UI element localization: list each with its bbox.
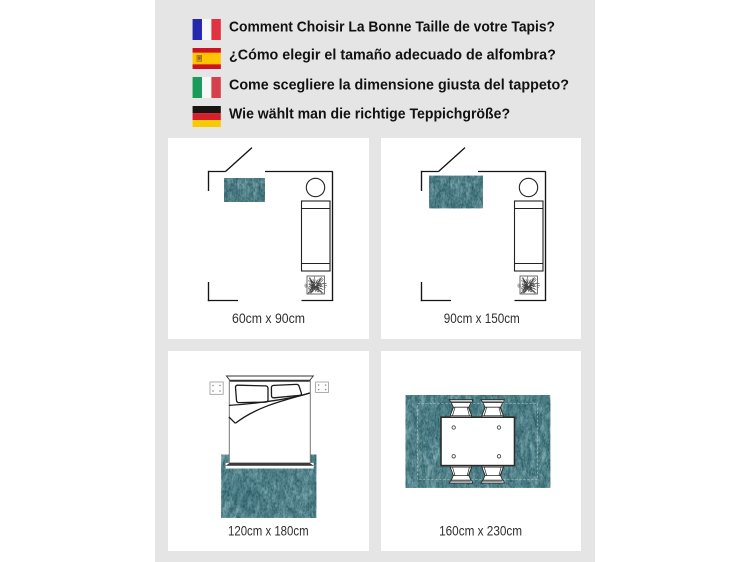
svg-text:60cm x 90cm: 60cm x 90cm — [232, 311, 305, 326]
svg-text:120cm x 180cm: 120cm x 180cm — [228, 524, 309, 539]
svg-text:160cm x 230cm: 160cm x 230cm — [439, 524, 522, 539]
svg-text:90cm x 150cm: 90cm x 150cm — [444, 311, 520, 326]
